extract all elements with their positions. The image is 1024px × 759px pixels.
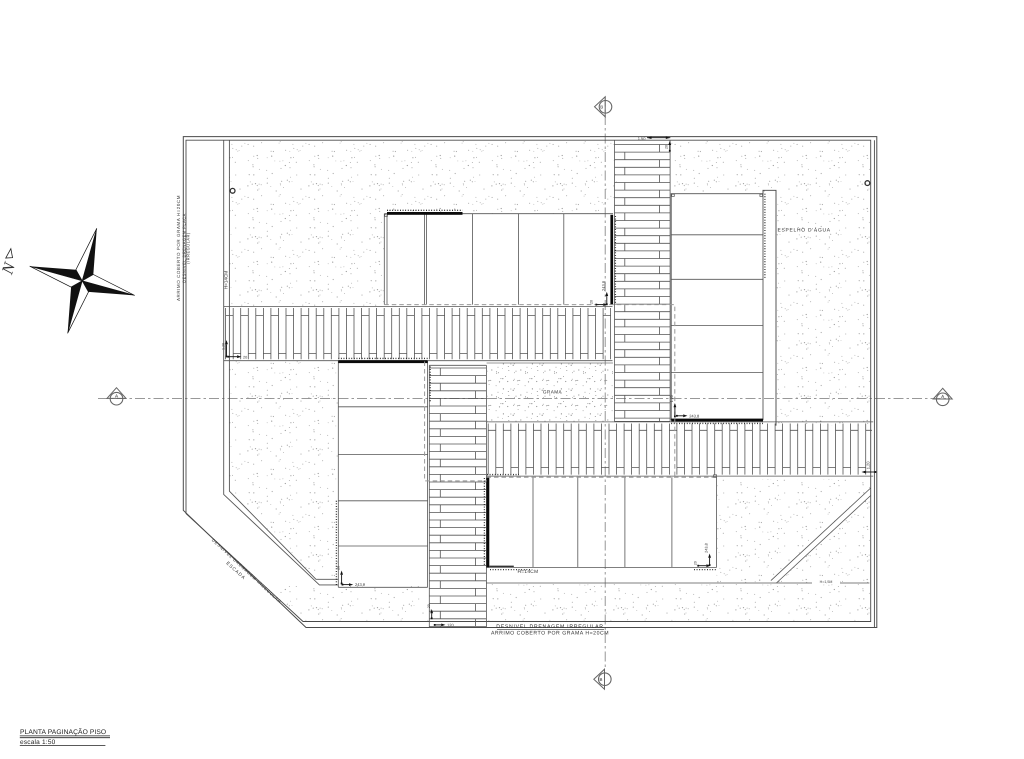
svg-text:GRAMA: GRAMA [543, 390, 563, 395]
svg-text:243,8: 243,8 [689, 413, 700, 418]
svg-text:H=1,5M: H=1,5M [820, 580, 833, 584]
svg-text:243,8: 243,8 [705, 543, 709, 553]
svg-text:1,20: 1,20 [866, 461, 871, 470]
svg-text:ARRIMO COBERTO POR GRAMA H=20C: ARRIMO COBERTO POR GRAMA H=20CM [176, 195, 181, 301]
svg-text:B: B [600, 104, 603, 109]
svg-text:243,9: 243,9 [355, 582, 366, 587]
svg-text:ESPELHO D'ÁGUA: ESPELHO D'ÁGUA [778, 227, 831, 234]
svg-text:DESNIVEL DRENAGEM IRREGULAR: DESNIVEL DRENAGEM IRREGULAR [496, 624, 604, 630]
svg-text:escala 1:50: escala 1:50 [20, 739, 56, 746]
svg-text:H=14CM: H=14CM [518, 569, 539, 575]
svg-text:20: 20 [693, 561, 697, 565]
svg-text:20: 20 [590, 300, 594, 304]
svg-text:20: 20 [664, 145, 668, 149]
svg-text:PLANTA PAGINAÇÃO PISO: PLANTA PAGINAÇÃO PISO [20, 728, 106, 736]
svg-text:1,20: 1,20 [222, 343, 226, 350]
svg-text:243,8: 243,8 [601, 280, 606, 291]
svg-text:20: 20 [243, 355, 247, 359]
svg-text:120: 120 [447, 623, 454, 628]
svg-text:(IRREGULAR): (IRREGULAR) [185, 232, 190, 264]
svg-text:B: B [600, 677, 603, 682]
svg-text:H=14CM: H=14CM [224, 271, 229, 289]
svg-text:1,50: 1,50 [638, 136, 647, 141]
svg-text:20: 20 [337, 566, 341, 570]
svg-text:20: 20 [427, 604, 431, 608]
svg-text:ARRIMO COBERTO POR GRAMA H=20C: ARRIMO COBERTO POR GRAMA H=20CM [491, 630, 609, 636]
svg-text:1,20: 1,20 [670, 395, 674, 402]
